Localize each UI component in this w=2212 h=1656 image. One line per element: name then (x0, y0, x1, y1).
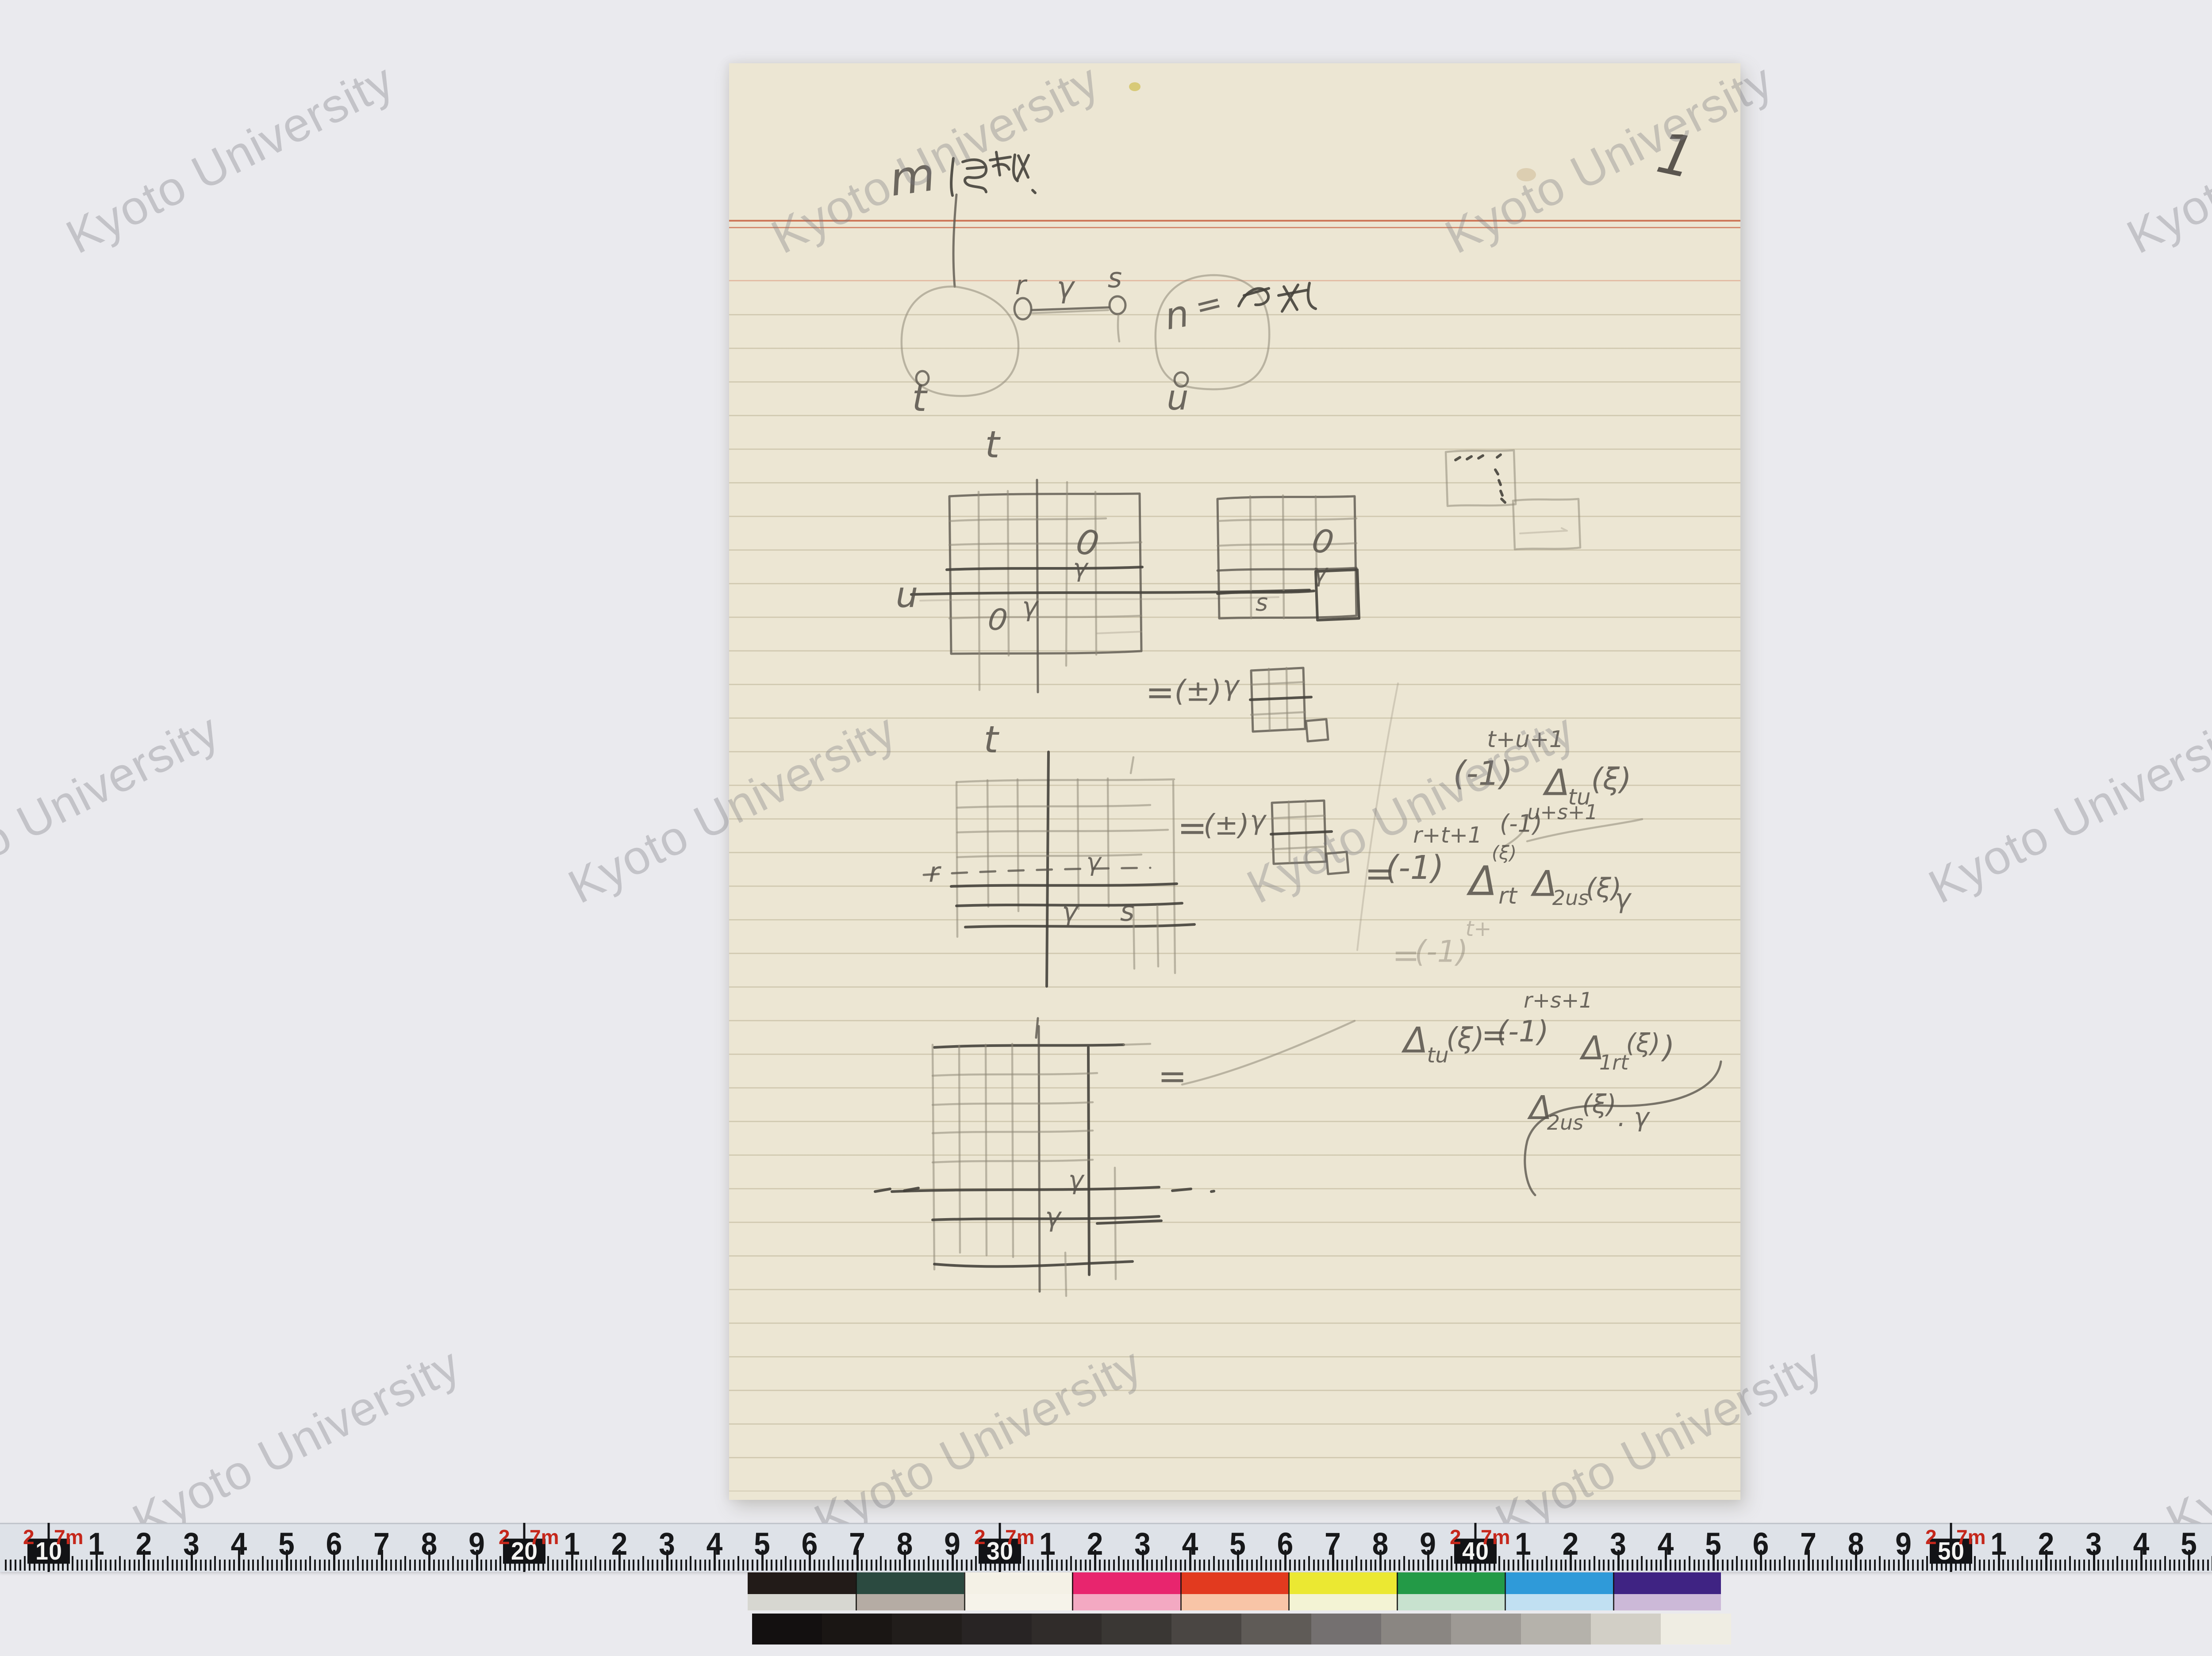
handwriting-item: (ξ) (1626, 1028, 1660, 1058)
ruler-tick-mm (1298, 1560, 1300, 1571)
ruler-tick-mm (457, 1560, 459, 1571)
ruler-tick-mm (1389, 1560, 1391, 1571)
ruler-number: 1 (564, 1526, 580, 1562)
ruler-number: 4 (1658, 1526, 1674, 1562)
ruler-tick-mm (1180, 1560, 1182, 1571)
ruler-tick-mm (395, 1560, 397, 1571)
handwriting-item: γ (1062, 897, 1078, 928)
ruler-tick-half (1165, 1556, 1167, 1571)
ruler-tick-half (2021, 1556, 2023, 1571)
ruler-tick-mm (1370, 1560, 1372, 1571)
ruler-tick-mm (409, 1560, 411, 1571)
ruler-tick-mm (676, 1560, 677, 1571)
ruler-number: 7 (1325, 1526, 1341, 1562)
ruler-number: 2 (1087, 1526, 1103, 1562)
ruler-tick-mm (1598, 1560, 1600, 1571)
ruler-tick-mm (400, 1560, 402, 1571)
small-grid-1 (1250, 668, 1328, 741)
ruler-tick-mm (1346, 1560, 1348, 1571)
ruler-tick-mm (1441, 1560, 1443, 1571)
ruler-tick-mm (252, 1560, 254, 1571)
ruler-tick-mm (267, 1560, 269, 1571)
ruler-meter-prefix: 2 (1450, 1525, 1461, 1549)
ruler-tick-mm (1836, 1560, 1838, 1571)
ruler-number: 3 (183, 1526, 200, 1562)
ruler-tick-mm (1979, 1560, 1981, 1571)
ruler-tick-mm (1203, 1560, 1205, 1571)
ruler-tick-mm (124, 1560, 126, 1571)
ruler-tick-mm (1798, 1560, 1800, 1571)
ruler-tick-mm (153, 1560, 154, 1571)
handwriting-item: 1rt (1599, 1050, 1628, 1074)
ruler-number: 6 (1277, 1526, 1294, 1562)
ruler-tick-mm (2064, 1560, 2066, 1571)
handwriting-item: s (1108, 262, 1122, 294)
ruler-number: 2 (2038, 1526, 2055, 1562)
ruler-tick-mm (580, 1560, 582, 1571)
ruler-tick-mm (1684, 1560, 1686, 1571)
ruler-tick-mm (77, 1560, 78, 1571)
ruler-tick-mm (162, 1560, 164, 1571)
ruler-tick-mm (2036, 1560, 2038, 1571)
ruler-tick-half (595, 1556, 596, 1571)
ruler-tick-mm (1884, 1560, 1886, 1571)
ruler-tick-mm (890, 1560, 891, 1571)
ruler-tick-mm (590, 1560, 592, 1571)
ruler-tick-mm (485, 1560, 487, 1571)
ruler-tick-mm (1032, 1560, 1034, 1571)
ruler-tick-half (262, 1556, 264, 1571)
ruler-tick-mm (414, 1560, 416, 1571)
ruler-tick-mm (1246, 1560, 1248, 1571)
ruler-tick-mm (1922, 1560, 1924, 1571)
ruler-tick-mm (1632, 1560, 1633, 1571)
ruler-tick-half (499, 1556, 501, 1571)
ruler-tick-mm (1579, 1560, 1581, 1571)
ruler-tick-half (1594, 1556, 1595, 1571)
ruler-meter-suffix: 7m (1956, 1525, 1985, 1549)
ruler-tick-mm (1080, 1560, 1082, 1571)
ruler-tick-mm (466, 1560, 468, 1571)
handwriting-item: s (1120, 895, 1134, 928)
ruler-tick-mm (2107, 1560, 2109, 1571)
ruler-number: 2 (136, 1526, 152, 1562)
ruler-tick-mm (1360, 1560, 1362, 1571)
ruler-tick-mm (1313, 1560, 1315, 1571)
ruler-meter-suffix: 7m (1005, 1525, 1034, 1549)
ruler-tick-half (1831, 1556, 1833, 1571)
ruler-number: 4 (231, 1526, 247, 1562)
ruler-tick-mm (1732, 1560, 1733, 1571)
ruler-tick-mm (181, 1560, 183, 1571)
ruler-number: 8 (421, 1526, 438, 1562)
ruler-tick-mm (1674, 1560, 1676, 1571)
ruler-tick-mm (699, 1560, 701, 1571)
ruler-tick-mm (219, 1560, 221, 1571)
handwriting-item: r (929, 856, 940, 889)
ruler-tick-half (167, 1556, 169, 1571)
handwriting-item: = (1158, 1057, 1187, 1096)
ruler-tick-mm (1508, 1560, 1509, 1571)
ruler-tick-mm (172, 1560, 173, 1571)
ruler-tick-mm (1608, 1560, 1609, 1571)
ruler-tick-mm (390, 1560, 392, 1571)
ruler-tick-mm (628, 1560, 630, 1571)
handwriting-item: γ (1073, 554, 1087, 583)
ruler-tick-mm (1275, 1560, 1277, 1571)
ruler-tick-mm (1603, 1560, 1605, 1571)
handwriting-item: tu (1427, 1043, 1448, 1068)
ruler-tick-mm (1394, 1560, 1395, 1571)
ruler-tick-mm (134, 1560, 135, 1571)
ruler-meter-suffix: 7m (1481, 1525, 1510, 1549)
ruler-tick-mm (842, 1560, 844, 1571)
ruler-number: 5 (754, 1526, 770, 1562)
ruler-decade-line (1950, 1523, 1952, 1572)
ruler-tick-mm (1127, 1560, 1129, 1571)
ruler-tick-mm (776, 1560, 777, 1571)
ruler-tick-mm (1822, 1560, 1824, 1571)
ruler-tick-mm (419, 1560, 421, 1571)
ruler-tick-mm (1679, 1560, 1681, 1571)
ruler-tick-mm (157, 1560, 159, 1571)
handwriting-item: 2us (1547, 1111, 1583, 1135)
ruler-tick-mm (343, 1560, 345, 1571)
ruler-tick-mm (271, 1560, 273, 1571)
handwriting-item: u (896, 575, 918, 616)
ruler-number: 1 (88, 1526, 104, 1562)
ruler-tick-half (690, 1556, 691, 1571)
handwriting-item: (ξ) (1492, 842, 1517, 864)
ruler-tick-mm (314, 1560, 316, 1571)
ruler-tick-half (214, 1556, 216, 1571)
ruler-tick-half (1403, 1556, 1405, 1571)
ruler-tick-mm (704, 1560, 706, 1571)
ruler-tick-mm (695, 1560, 696, 1571)
ruler-tick-mm (1694, 1560, 1695, 1571)
ruler-tick-mm (1056, 1560, 1058, 1571)
ruler-meter-prefix: 2 (1925, 1525, 1937, 1549)
ruler-tick-mm (1646, 1560, 1647, 1571)
ruler-tick-mm (248, 1560, 250, 1571)
ruler-tick-half (1689, 1556, 1690, 1571)
ruler-tick-mm (210, 1560, 211, 1571)
ruler-tick-mm (837, 1560, 839, 1571)
ruler-number: 7 (1800, 1526, 1816, 1562)
matrix-sketch-b (1217, 495, 1359, 620)
ruler-number: 8 (1848, 1526, 1864, 1562)
ruler-tick-mm (1793, 1560, 1795, 1571)
ruler-tick-half (1641, 1556, 1643, 1571)
ruler-tick-mm (2017, 1560, 2019, 1571)
ruler-tick-half (1213, 1556, 1215, 1571)
block-diagonal-sketch (1446, 450, 1580, 549)
handwriting-item: (ξ) (1591, 762, 1632, 797)
ruler-tick-mm (1075, 1560, 1077, 1571)
ruler-tick-mm (1322, 1560, 1324, 1571)
ruler-tick-half (928, 1556, 929, 1571)
ruler-tick-half (880, 1556, 882, 1571)
ruler-tick-mm (1123, 1560, 1125, 1571)
ruler-decade-line (48, 1523, 50, 1572)
ruler-tick-mm (110, 1560, 111, 1571)
ruler-meter-prefix: 2 (974, 1525, 986, 1549)
ruler-tick-mm (1365, 1560, 1367, 1571)
ruler-tick-mm (1541, 1560, 1543, 1571)
ruler-tick-mm (86, 1560, 88, 1571)
ruler-tick-half (1451, 1556, 1452, 1571)
ruler-tick-mm (914, 1560, 915, 1571)
ruler-tick-half (1546, 1556, 1548, 1571)
kanji-annotation-right (1239, 283, 1316, 311)
ruler-tick-mm (1917, 1560, 1919, 1571)
ruler-tick-mm (2121, 1560, 2123, 1571)
ruler-tick-mm (1317, 1560, 1319, 1571)
ruler-tick-mm (81, 1560, 83, 1571)
ruler-tick-mm (771, 1560, 772, 1571)
ruler-tick-mm (461, 1560, 463, 1571)
ruler-tick-mm (780, 1560, 782, 1571)
ruler-tick-mm (2055, 1560, 2057, 1571)
handwriting-item: t+ (1465, 916, 1491, 941)
ruler-number: 3 (1610, 1526, 1626, 1562)
ruler-number: 4 (2133, 1526, 2150, 1562)
ruler-tick-half (1926, 1556, 1928, 1571)
ruler-tick-mm (257, 1560, 259, 1571)
ruler-tick-mm (1551, 1560, 1552, 1571)
ruler-tick-mm (1170, 1560, 1172, 1571)
ruler-number: 9 (469, 1526, 485, 1562)
ruler-tick-half (975, 1556, 977, 1571)
ruler-tick-mm (1741, 1560, 1743, 1571)
ruler-tick-mm (366, 1560, 368, 1571)
handwriting-item: t (912, 376, 927, 420)
ruler-number: 8 (897, 1526, 913, 1562)
ruler-tick-mm (1770, 1560, 1771, 1571)
ruler-tick-mm (371, 1560, 373, 1571)
handwriting-item: s (1256, 589, 1268, 617)
ruler-meter-suffix: 7m (54, 1525, 83, 1549)
ruler-number: 1 (1515, 1526, 1531, 1562)
ruler-tick-mm (2083, 1560, 2085, 1571)
ruler-tick-half (1118, 1556, 1120, 1571)
ruler-tick-mm (1417, 1560, 1419, 1571)
ruler-tick-mm (1888, 1560, 1890, 1571)
ruler-tick-mm (747, 1560, 749, 1571)
ruler-tick-mm (1536, 1560, 1538, 1571)
handwriting-item: γ (1022, 591, 1038, 622)
ruler-tick-mm (1779, 1560, 1781, 1571)
handwriting-item: γ (1086, 848, 1101, 877)
handwriting-item: (-1) (1415, 935, 1468, 970)
handwriting-item: (-1) (1386, 849, 1444, 887)
ruler-tick-half (2116, 1556, 2118, 1571)
ruler-tick-mm (552, 1560, 554, 1571)
ruler-tick-half (357, 1556, 359, 1571)
ruler-tick-mm (1651, 1560, 1652, 1571)
ruler-tick-mm (295, 1560, 297, 1571)
ruler-tick-mm (1727, 1560, 1728, 1571)
handwriting-item: γ (1045, 1202, 1061, 1233)
ruler-tick-mm (1208, 1560, 1210, 1571)
ruler-tick-mm (2169, 1560, 2171, 1571)
ruler-tick-mm (971, 1560, 972, 1571)
ruler-tick-mm (923, 1560, 925, 1571)
ruler-meter-prefix: 2 (499, 1525, 510, 1549)
ruler-tick-mm (1912, 1560, 1914, 1571)
ruler-tick-half (309, 1556, 311, 1571)
ruler-tick-mm (224, 1560, 226, 1571)
ruler-tick-mm (1751, 1560, 1752, 1571)
ruler-tick-mm (2178, 1560, 2180, 1571)
ruler-tick-mm (2031, 1560, 2033, 1571)
ruler-tick-mm (680, 1560, 682, 1571)
ruler-tick-mm (1655, 1560, 1657, 1571)
ruler-tick-mm (1722, 1560, 1724, 1571)
ruler-tick-mm (1869, 1560, 1871, 1571)
ruler-tick-half (1879, 1556, 1881, 1571)
ruler-tick-mm (1037, 1560, 1039, 1571)
handwriting-item: u+s+1 (1527, 800, 1598, 824)
handwriting-item: γ (1313, 559, 1327, 588)
ruler-tick-mm (1846, 1560, 1847, 1571)
ruler-tick-mm (723, 1560, 725, 1571)
ruler-tick-mm (933, 1560, 934, 1571)
ruler-tick-mm (795, 1560, 796, 1571)
ruler-number: 3 (2085, 1526, 2102, 1562)
ruler-tick-mm (1156, 1560, 1158, 1571)
ruler-tick-mm (1560, 1560, 1562, 1571)
ruler-tick-mm (1703, 1560, 1705, 1571)
handwriting-item: r (1015, 270, 1026, 301)
ruler-number: 3 (1134, 1526, 1151, 1562)
ruler-tick-mm (633, 1560, 634, 1571)
ruler-tick-mm (15, 1560, 16, 1571)
handwriting-item: = (1177, 808, 1207, 849)
ruler-tick-half (1498, 1556, 1500, 1571)
ruler-tick-mm (895, 1560, 896, 1571)
ruler-tick-mm (1351, 1560, 1353, 1571)
ruler-tick-mm (1698, 1560, 1700, 1571)
ruler-tick-mm (799, 1560, 801, 1571)
ruler-tick-half (1974, 1556, 1976, 1571)
scanned-photo-stage: mrγsn=tutu0γγ00γs=(±)γtrγγs=(±)γ(-1)t+u+… (0, 0, 2212, 1656)
ruler-tick-mm (561, 1560, 563, 1571)
ruler-tick-mm (609, 1560, 611, 1571)
ruler-tick-mm (1627, 1560, 1628, 1571)
ruler-tick-mm (961, 1560, 963, 1571)
ruler-tick-mm (1841, 1560, 1843, 1571)
ruler-tick-mm (2078, 1560, 2080, 1571)
ruler-tick-mm (599, 1560, 601, 1571)
ruler-tick-mm (942, 1560, 944, 1571)
ruler-tick-mm (1408, 1560, 1410, 1571)
ruler-tick-half (2069, 1556, 2071, 1571)
ruler-tick-mm (1983, 1560, 1985, 1571)
ruler-tick-mm (1988, 1560, 1990, 1571)
ruler-tick-mm (557, 1560, 558, 1571)
ruler-tick-mm (2202, 1560, 2204, 1571)
ruler-tick-mm (1199, 1560, 1201, 1571)
handwriting-item: Δ (1404, 1020, 1428, 1061)
ruler-tick-mm (823, 1560, 825, 1571)
ruler-tick-mm (1893, 1560, 1895, 1571)
ruler-tick-half (547, 1556, 549, 1571)
ruler-tick-mm (19, 1560, 21, 1571)
connector-curve (1182, 1021, 1355, 1085)
ruler-tick-half (642, 1556, 644, 1571)
ruler-tick-mm (347, 1560, 349, 1571)
ruler-tick-half (2164, 1556, 2166, 1571)
ruler-tick-mm (1874, 1560, 1876, 1571)
ruler-tick-half (452, 1556, 454, 1571)
ruler-tick-mm (876, 1560, 877, 1571)
ruler-tick-mm (1413, 1560, 1414, 1571)
ruler-tick-mm (637, 1560, 639, 1571)
ruler-number: 6 (802, 1526, 818, 1562)
measuring-ruler: 1027m1234567892027m1234567893027m1234567… (0, 1523, 2212, 1572)
ruler-tick-mm (685, 1560, 687, 1571)
handwriting-item: γ (1068, 1165, 1083, 1195)
ruler-tick-mm (585, 1560, 587, 1571)
matrix-sketch-mid (924, 752, 1194, 986)
ruler-tick-half (119, 1556, 121, 1571)
ruler-tick-mm (1066, 1560, 1068, 1571)
ruler-tick-mm (937, 1560, 939, 1571)
ruler-tick-mm (1104, 1560, 1106, 1571)
ruler-tick-mm (1303, 1560, 1305, 1571)
ruler-tick-mm (305, 1560, 307, 1571)
ruler-tick-mm (10, 1560, 12, 1571)
ruler-tick-mm (733, 1560, 734, 1571)
ruler-tick-mm (752, 1560, 753, 1571)
ruler-tick-half (1260, 1556, 1262, 1571)
ruler-tick-half (737, 1556, 739, 1571)
ruler-tick-mm (1817, 1560, 1819, 1571)
ruler-tick-half (833, 1556, 834, 1571)
handwriting-item: . γ (1617, 1102, 1649, 1132)
handwriting-item: γ (1056, 271, 1074, 305)
ruler-tick-mm (1270, 1560, 1272, 1571)
ruler-tick-half (1023, 1556, 1025, 1571)
ruler-tick-half (1308, 1556, 1310, 1571)
ruler-tick-mm (2059, 1560, 2061, 1571)
ruler-tick-mm (1256, 1560, 1258, 1571)
ruler-tick-mm (871, 1560, 872, 1571)
ruler-tick-half (785, 1556, 787, 1571)
ruler-tick-mm (1513, 1560, 1514, 1571)
ruler-tick-mm (1341, 1560, 1343, 1571)
ruler-tick-half (1736, 1556, 1738, 1571)
ruler-tick-mm (1113, 1560, 1115, 1571)
ruler-number: 4 (707, 1526, 723, 1562)
ruler-tick-mm (1132, 1560, 1134, 1571)
handwriting-item: ) (1663, 1030, 1675, 1065)
ruler-number: 5 (278, 1526, 295, 1562)
ruler-tick-mm (2102, 1560, 2104, 1571)
ruler-tick-mm (1251, 1560, 1253, 1571)
handwriting-item: r+s+1 (1524, 988, 1593, 1013)
ruler-tick-mm (324, 1560, 326, 1571)
ruler-tick-half (24, 1556, 26, 1571)
handwriting-item: u (1167, 378, 1188, 418)
ruler-tick-mm (1555, 1560, 1557, 1571)
ruler-number: 5 (1229, 1526, 1246, 1562)
ruler-tick-mm (1584, 1560, 1586, 1571)
handwriting-item: t (985, 423, 1000, 466)
ruler-tick-mm (1175, 1560, 1177, 1571)
ruler-tick-mm (1532, 1560, 1533, 1571)
